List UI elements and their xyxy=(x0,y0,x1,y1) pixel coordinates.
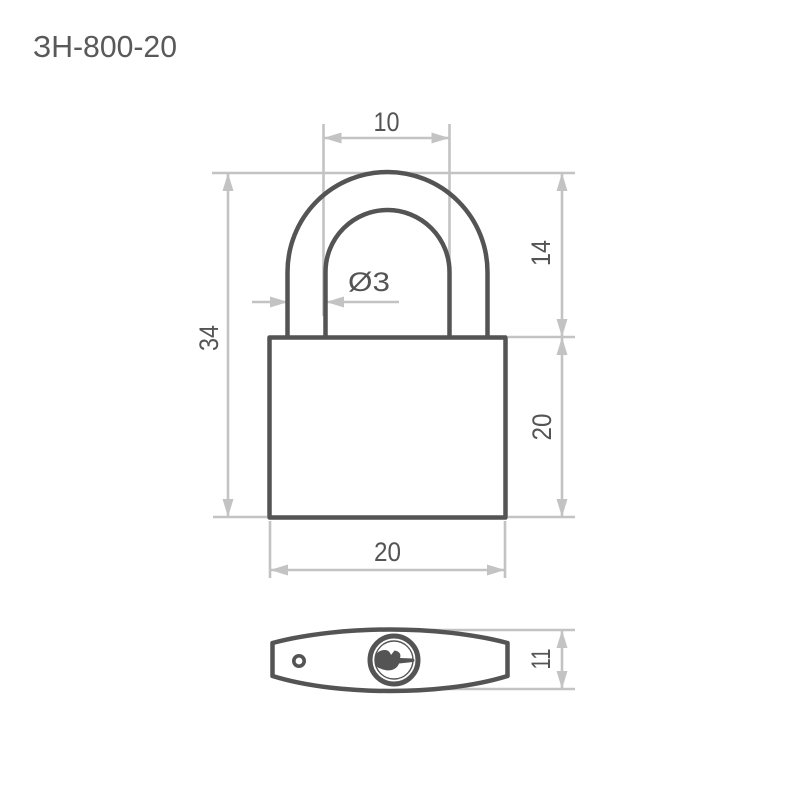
arrowhead xyxy=(270,565,288,576)
bottom-view xyxy=(273,630,508,692)
label-total-height: 34 xyxy=(194,325,224,351)
arrowhead xyxy=(557,319,568,337)
label-shackle-diameter: Ø3 xyxy=(348,267,390,297)
label-body-width: 20 xyxy=(374,537,401,567)
arrowhead xyxy=(487,565,505,576)
label-shackle-inner-width: 10 xyxy=(374,107,400,137)
shackle-outer-outline xyxy=(288,172,488,340)
label-body-height: 20 xyxy=(527,414,557,441)
drawing-title: ЗН-800-20 xyxy=(33,29,177,64)
arrowhead xyxy=(223,173,234,191)
arrowhead xyxy=(557,671,568,689)
arrowhead xyxy=(557,173,568,191)
rivet-hole xyxy=(294,656,304,666)
padlock-body xyxy=(270,338,506,518)
arrowhead xyxy=(557,630,568,648)
arrowhead xyxy=(557,499,568,517)
drawing-sheet: ЗН-800-20 10 Ø3 34 14 20 20 11 xyxy=(0,0,800,800)
front-view xyxy=(270,172,506,518)
technical-drawing: ЗН-800-20 10 Ø3 34 14 20 20 11 xyxy=(0,0,800,800)
label-body-thickness: 11 xyxy=(526,649,556,670)
arrowhead xyxy=(326,297,344,308)
arrowhead xyxy=(223,499,234,517)
arrowhead xyxy=(557,337,568,355)
arrowhead xyxy=(432,133,450,144)
arrowhead xyxy=(324,133,342,144)
label-shackle-height: 14 xyxy=(526,240,556,266)
